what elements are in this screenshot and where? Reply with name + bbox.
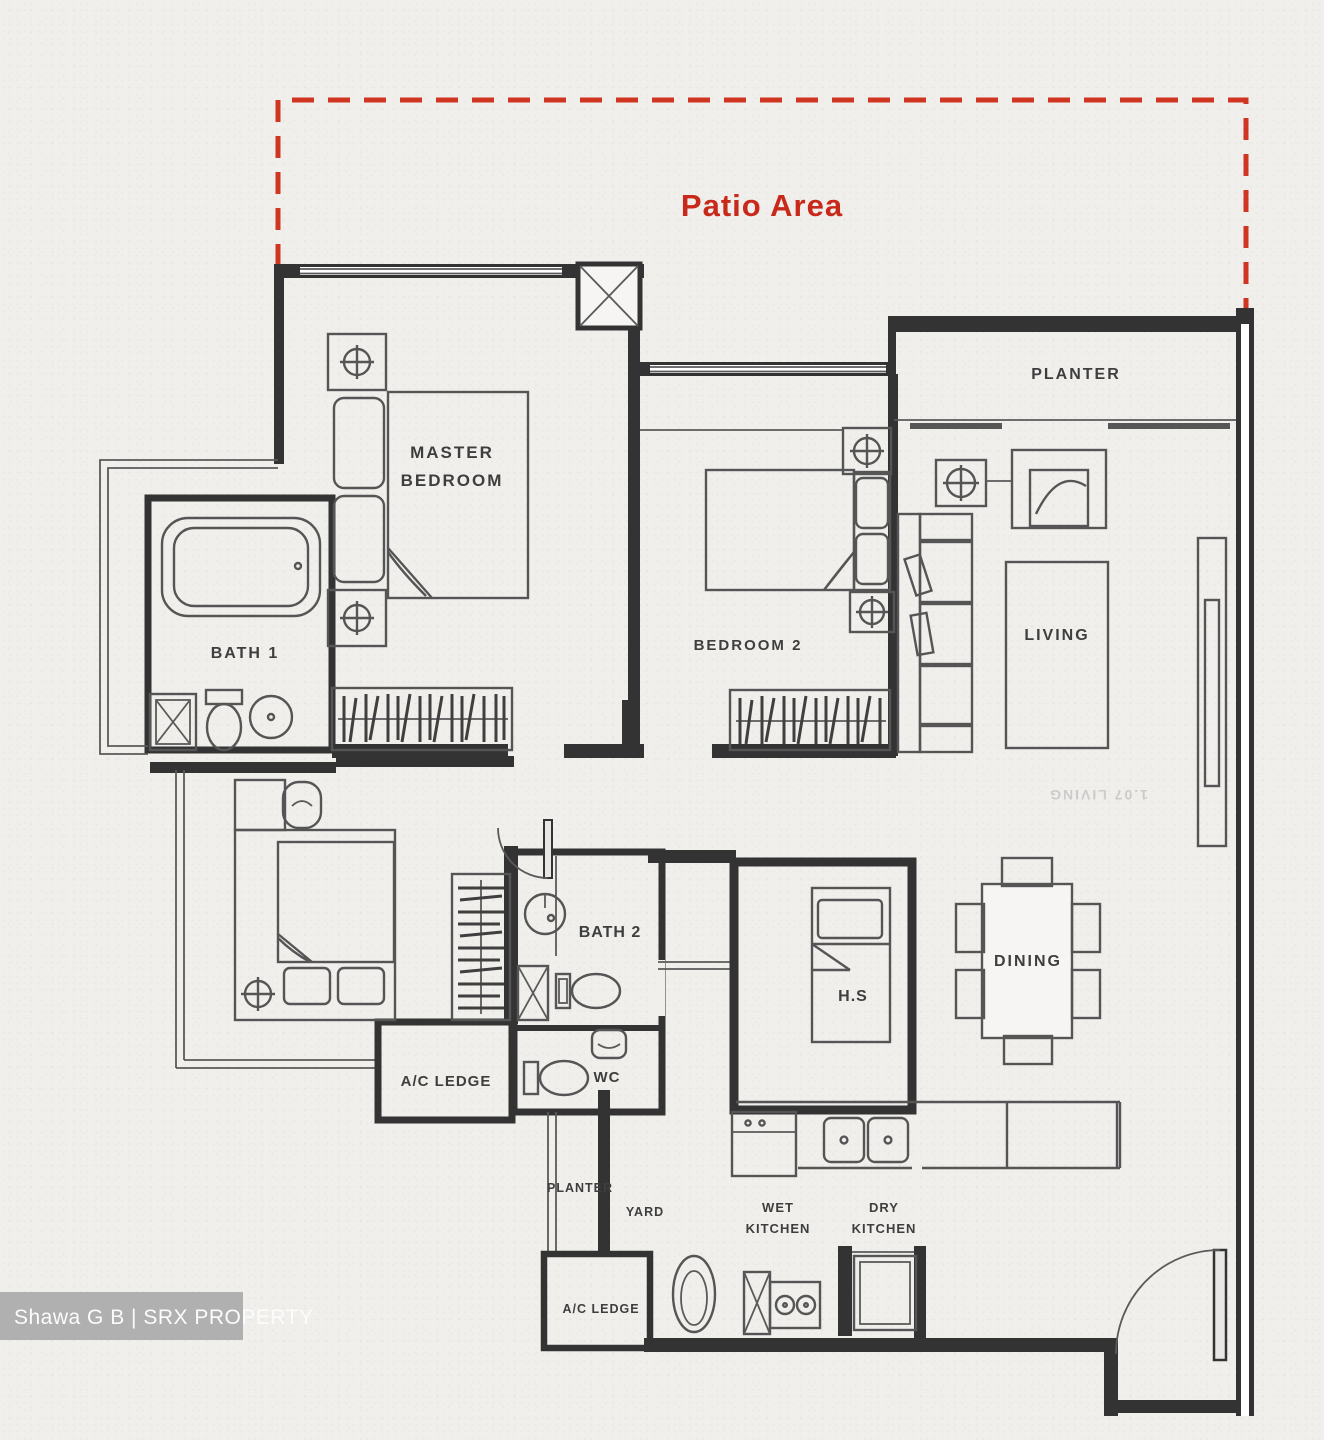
label-ac-ledge-bottom: A/C LEDGE bbox=[562, 1302, 639, 1316]
sink bbox=[250, 696, 292, 738]
watermark-text: Shawa G B | SRX PROPERTY bbox=[14, 1306, 314, 1329]
sofa-pillow bbox=[911, 613, 934, 655]
shower-stall bbox=[518, 966, 548, 1020]
wall-bottom bbox=[644, 1338, 1118, 1352]
wc-basin bbox=[592, 1030, 626, 1058]
master-bedroom: MASTER BEDROOM bbox=[328, 334, 528, 750]
entrance-door-leaf bbox=[1214, 1250, 1226, 1360]
toilet bbox=[556, 974, 620, 1008]
toilet bbox=[524, 1061, 588, 1095]
label-wet-kitchen-line2: KITCHEN bbox=[746, 1221, 811, 1236]
label-yard: YARD bbox=[626, 1205, 664, 1219]
wall-entry-jamb bbox=[1104, 1346, 1118, 1416]
pillow bbox=[334, 398, 384, 488]
light-symbol bbox=[241, 977, 275, 1011]
household-shelter: H.S bbox=[812, 888, 890, 1042]
label-wc: WC bbox=[594, 1069, 621, 1086]
bleed-through-text: 1.07 LIVING bbox=[1048, 787, 1148, 803]
wall-ac-ledge-bottom bbox=[544, 1254, 650, 1348]
washing-machine bbox=[732, 1112, 796, 1176]
threshold-yard bbox=[658, 962, 730, 969]
wall-master-left bbox=[274, 264, 284, 464]
entrance-door-swing-arc bbox=[1116, 1250, 1220, 1354]
light-symbol bbox=[856, 596, 888, 628]
label-ac-ledge-left: A/C LEDGE bbox=[401, 1073, 492, 1090]
armchair bbox=[1012, 450, 1106, 528]
label-master-bedroom-line2: BEDROOM bbox=[401, 471, 504, 490]
label-living: LIVING bbox=[1024, 627, 1089, 644]
yard: YARD bbox=[626, 1205, 664, 1219]
label-planter-top: PLANTER bbox=[1031, 366, 1121, 383]
light-symbol bbox=[850, 434, 884, 468]
light-symbol bbox=[943, 465, 979, 501]
planter-bottom: PLANTER bbox=[547, 1181, 613, 1195]
label-dining: DINING bbox=[994, 953, 1062, 970]
sofa-pillow bbox=[905, 554, 932, 595]
sink bbox=[525, 894, 565, 934]
service-slot bbox=[744, 1272, 770, 1334]
label-bath-2: BATH 2 bbox=[579, 924, 642, 941]
label-dry-kitchen-line1: DRY bbox=[869, 1200, 899, 1215]
patio-area-label: Patio Area bbox=[681, 188, 843, 223]
dining-chair bbox=[1004, 1036, 1052, 1064]
fridge bbox=[854, 1256, 916, 1330]
shower-stall bbox=[150, 694, 196, 750]
label-hs: H.S bbox=[838, 988, 868, 1005]
label-dry-kitchen-line2: KITCHEN bbox=[852, 1221, 917, 1236]
dining-chair bbox=[1002, 858, 1052, 886]
bedroom3-bed bbox=[278, 842, 394, 962]
pillow bbox=[334, 496, 384, 582]
dining-chair bbox=[1072, 970, 1100, 1018]
wall-entry-stub bbox=[1118, 1400, 1236, 1413]
wall-bedroom3-top-right bbox=[336, 756, 514, 767]
wall-yard-left bbox=[598, 1090, 610, 1256]
master-wardrobe bbox=[332, 688, 512, 750]
bedroom3-wardrobe bbox=[452, 874, 510, 1020]
pillow bbox=[818, 900, 882, 938]
toilet bbox=[206, 690, 242, 750]
living-rug bbox=[1006, 562, 1108, 748]
floorplan-svg: Patio Area bbox=[0, 0, 1324, 1440]
pillow bbox=[338, 968, 384, 1004]
blanket-fold bbox=[278, 934, 312, 962]
label-planter-bottom: PLANTER bbox=[547, 1181, 613, 1195]
bedroom2-bed bbox=[706, 470, 854, 590]
dining-chair bbox=[1072, 904, 1100, 952]
wall-bedroom3-top-left bbox=[150, 762, 336, 773]
floorplan-page: Patio Area bbox=[0, 0, 1324, 1440]
wall-planter-top bbox=[888, 316, 1254, 332]
bath-1: BATH 1 bbox=[150, 518, 320, 750]
door-leaf bbox=[544, 820, 552, 878]
wall-right-outer bbox=[1236, 308, 1241, 1416]
tub-drain bbox=[295, 563, 301, 569]
watermark: Shawa G B | SRX PROPERTY bbox=[0, 1292, 314, 1340]
light-symbol bbox=[340, 345, 374, 379]
light-symbol bbox=[340, 601, 374, 635]
dining-chair bbox=[956, 970, 984, 1018]
stove bbox=[770, 1282, 820, 1328]
tv-console bbox=[1198, 538, 1226, 846]
wall-master-right bbox=[628, 326, 640, 756]
master-bed bbox=[388, 392, 528, 598]
dresser bbox=[235, 780, 321, 830]
blanket-fold bbox=[812, 944, 890, 970]
pillow bbox=[284, 968, 330, 1004]
pillow bbox=[856, 478, 888, 528]
blanket-fold bbox=[388, 548, 432, 598]
dining-chair bbox=[956, 904, 984, 952]
dining: DINING bbox=[956, 858, 1100, 1064]
entrance-door bbox=[1116, 1250, 1226, 1360]
living-room: LIVING 1.07 LIVING bbox=[898, 450, 1226, 846]
label-bath-1: BATH 1 bbox=[211, 645, 280, 662]
bedroom2-wardrobe bbox=[730, 690, 890, 750]
double-sink bbox=[824, 1118, 908, 1162]
bedroom-2: BEDROOM 2 bbox=[640, 428, 894, 750]
label-bedroom-2: BEDROOM 2 bbox=[694, 637, 803, 654]
sofa bbox=[898, 514, 972, 752]
wc: WC bbox=[524, 1030, 626, 1095]
wall-hall-hs bbox=[648, 850, 736, 863]
wall-ac-ledge-left bbox=[378, 1022, 512, 1120]
ac-ledge-bottom: A/C LEDGE bbox=[562, 1302, 639, 1316]
pillow bbox=[856, 534, 888, 584]
blanket-fold bbox=[824, 552, 854, 590]
bath-2: BATH 2 bbox=[518, 894, 641, 1020]
label-master-bedroom-line1: MASTER bbox=[410, 443, 494, 462]
walls bbox=[100, 264, 1254, 1416]
hs-bed bbox=[812, 888, 890, 1042]
kitchen: WET KITCHEN DRY KITCHEN bbox=[673, 1102, 1120, 1334]
yard-basin bbox=[673, 1256, 715, 1332]
label-wet-kitchen-line1: WET bbox=[762, 1200, 794, 1215]
bedroom-3 bbox=[235, 780, 510, 1020]
